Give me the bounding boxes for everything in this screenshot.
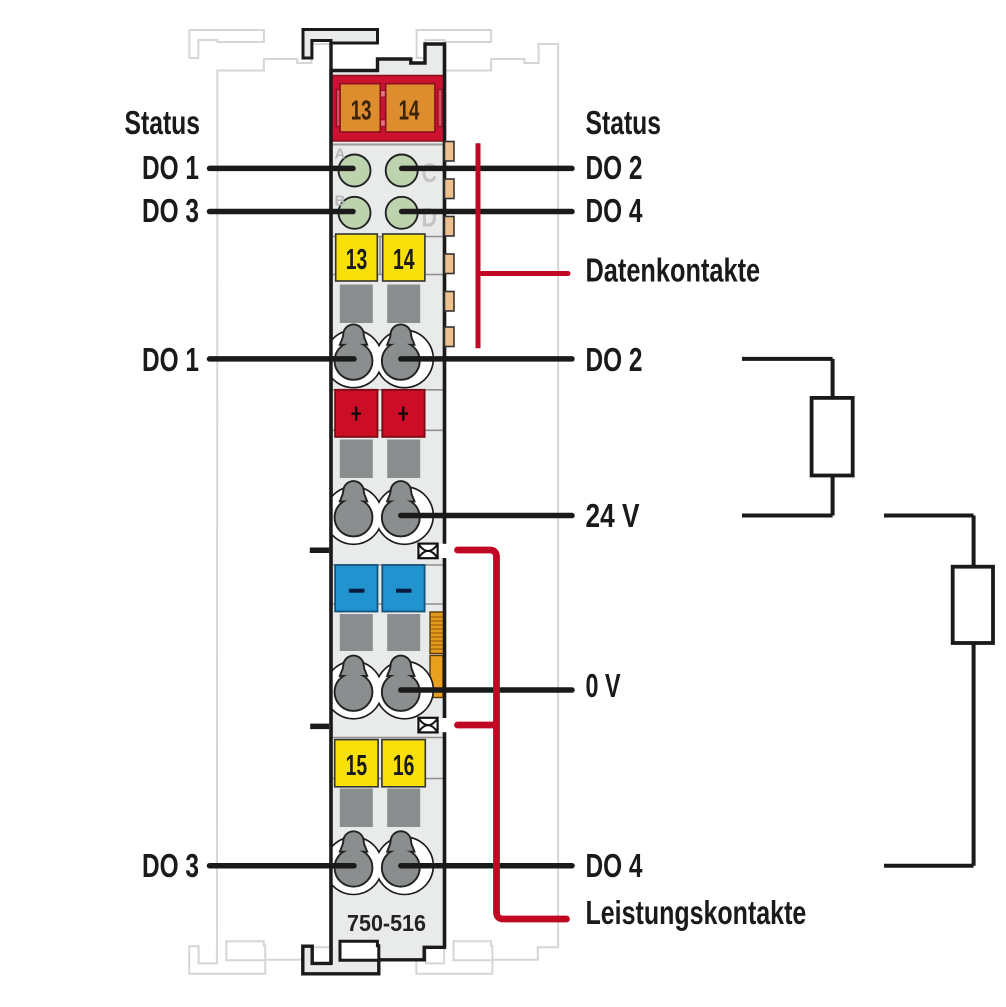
- svg-text:Status: Status: [125, 105, 201, 142]
- svg-text:0 V: 0 V: [586, 668, 621, 705]
- svg-text:DO 1: DO 1: [142, 150, 199, 187]
- svg-text:15: 15: [346, 750, 368, 782]
- svg-text:D: D: [422, 203, 438, 233]
- svg-text:Leistungskontakte: Leistungskontakte: [586, 895, 807, 932]
- svg-text:24 V: 24 V: [586, 498, 641, 535]
- svg-text:C: C: [422, 158, 438, 188]
- svg-text:DO 2: DO 2: [586, 150, 643, 187]
- svg-text:14: 14: [399, 95, 420, 126]
- svg-text:DO 4: DO 4: [586, 848, 643, 885]
- svg-text:A: A: [335, 146, 346, 163]
- svg-text:16: 16: [393, 750, 415, 782]
- svg-text:DO 3: DO 3: [142, 193, 199, 230]
- svg-text:14: 14: [393, 244, 415, 276]
- svg-text:DO 1: DO 1: [142, 342, 199, 379]
- svg-text:DO 2: DO 2: [586, 342, 643, 379]
- svg-text:DO 3: DO 3: [142, 848, 199, 885]
- svg-text:B: B: [335, 193, 346, 210]
- svg-text:DO 4: DO 4: [586, 193, 643, 230]
- svg-text:750-516: 750-516: [347, 910, 426, 936]
- svg-text:13: 13: [351, 95, 372, 126]
- svg-text:13: 13: [346, 244, 368, 276]
- svg-text:Status: Status: [586, 105, 662, 142]
- svg-text:Datenkontakte: Datenkontakte: [586, 253, 761, 290]
